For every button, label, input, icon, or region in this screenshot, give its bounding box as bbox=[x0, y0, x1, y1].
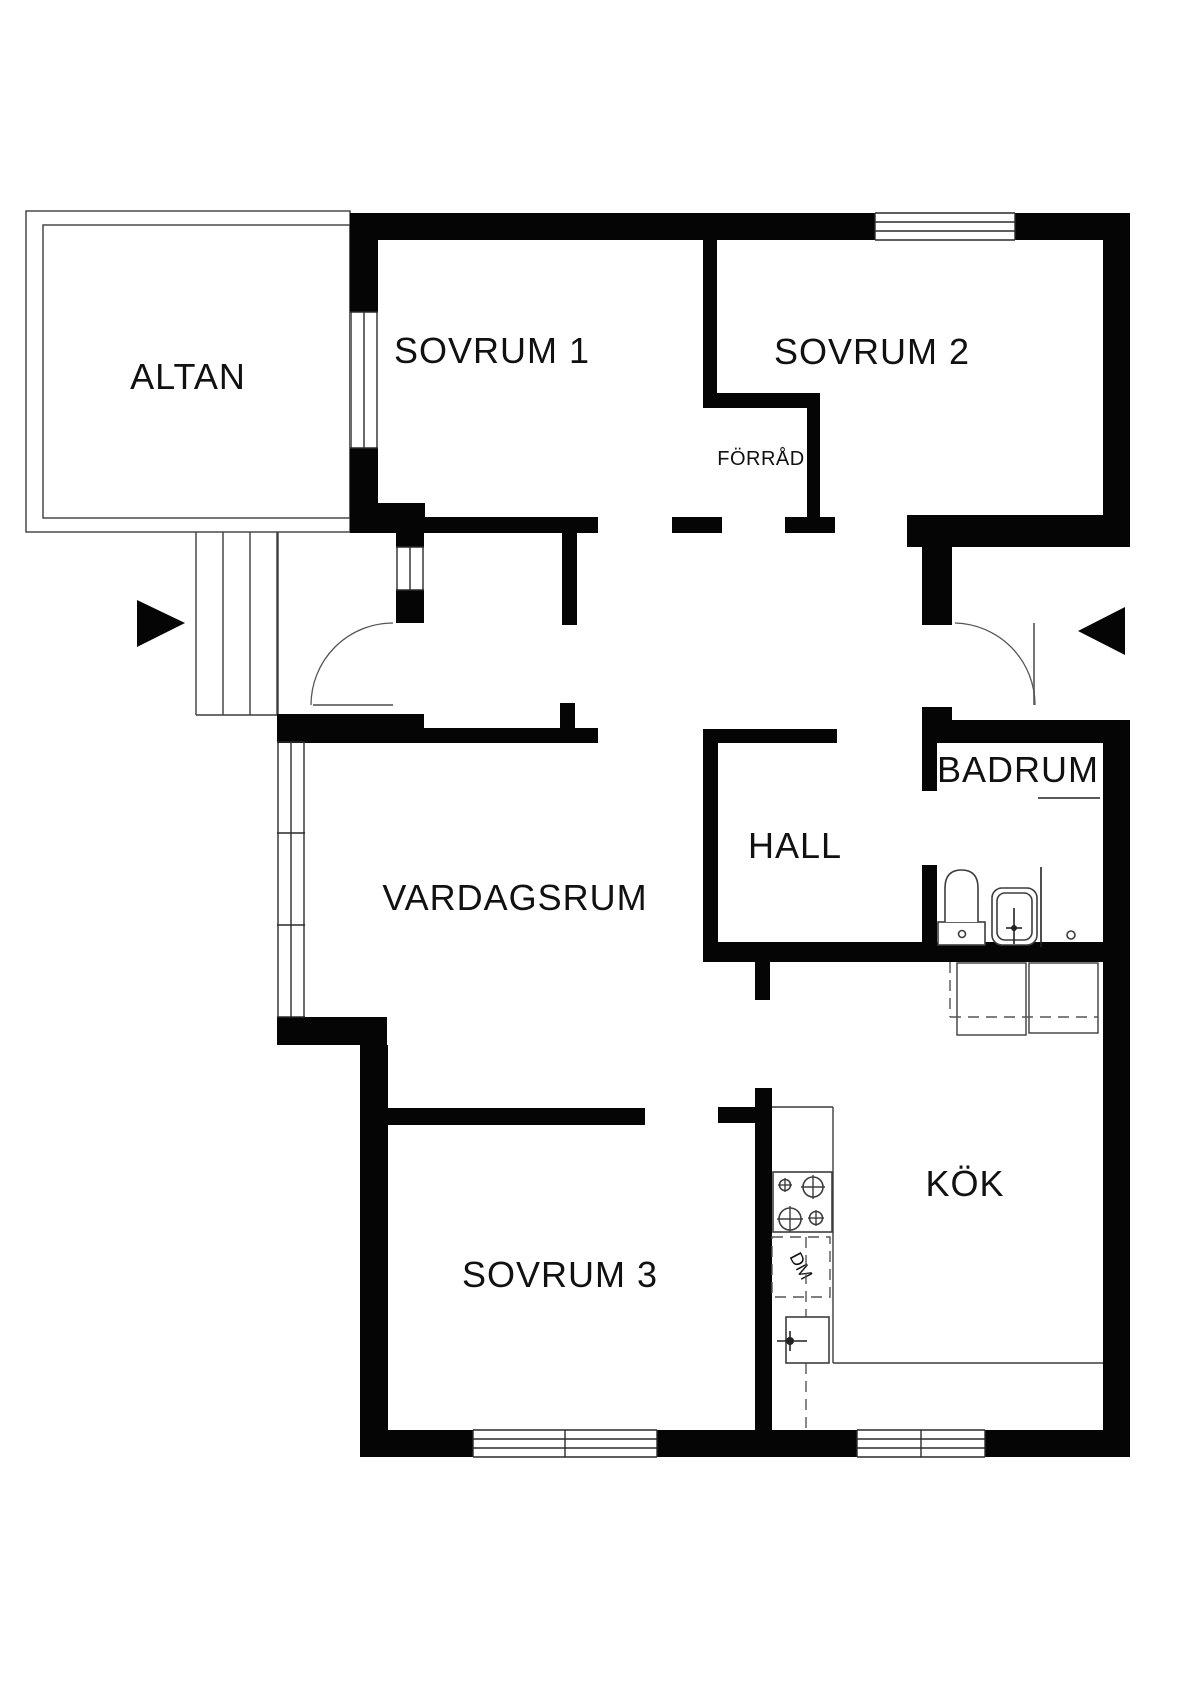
window-vestibule bbox=[396, 547, 424, 590]
room-label-vardagsrum: VARDAGSRUM bbox=[382, 877, 647, 918]
window-sovrum2-top bbox=[875, 213, 1015, 240]
bathroom-sink-icon bbox=[992, 888, 1037, 945]
room-label-hall: HALL bbox=[748, 825, 842, 866]
room-label-badrum: BADRUM bbox=[937, 749, 1099, 790]
room-label-sovrum1: SOVRUM 1 bbox=[394, 330, 590, 371]
room-label-sovrum3: SOVRUM 3 bbox=[462, 1254, 658, 1295]
room-label-kok: KÖK bbox=[925, 1163, 1004, 1204]
window-sovrum1-left bbox=[350, 312, 378, 448]
floorplan-drawing: DM ALTAN SOVRUM 1 SOVRUM 2 FÖRRÅD HALL B… bbox=[0, 0, 1200, 1696]
room-label-sovrum2: SOVRUM 2 bbox=[774, 331, 970, 372]
floorplan-page: DM ALTAN SOVRUM 1 SOVRUM 2 FÖRRÅD HALL B… bbox=[0, 0, 1200, 1696]
window-kok-bottom bbox=[857, 1430, 985, 1457]
stove-icon bbox=[773, 1172, 832, 1232]
window-sovrum3-bottom bbox=[473, 1430, 657, 1457]
room-label-forrad: FÖRRÅD bbox=[717, 447, 804, 470]
floor-drain-icon bbox=[1067, 931, 1075, 939]
toilet-icon bbox=[938, 870, 985, 945]
room-label-altan: ALTAN bbox=[130, 356, 246, 397]
